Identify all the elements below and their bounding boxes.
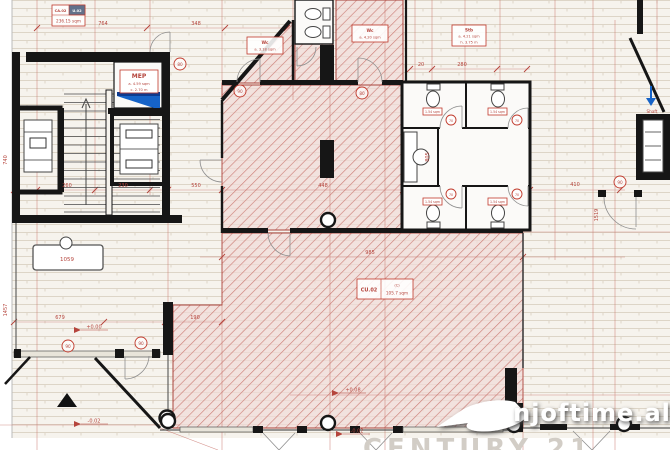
- svg-text:-0.02: -0.02: [351, 429, 364, 435]
- svg-text:1.54 sqm: 1.54 sqm: [425, 200, 440, 204]
- svg-text:a. 3.18 sqm: a. 3.18 sqm: [254, 48, 276, 52]
- svg-text:70: 70: [449, 119, 453, 123]
- mep-height: c. 2.70 m: [131, 88, 148, 92]
- wc-block: 1.54 sqm 1.54 sqm 1.54 sqm 1.54 sqm: [402, 82, 530, 232]
- main-unit-code: CU.02: [361, 288, 378, 294]
- svg-text:90: 90: [237, 89, 243, 94]
- brand-watermark: njoftime.al: [513, 399, 670, 427]
- svg-text:70: 70: [449, 193, 453, 197]
- column: [321, 416, 335, 430]
- svg-text:Stb: Stb: [465, 28, 473, 33]
- svg-text:70: 70: [515, 193, 519, 197]
- main-unit-tag: (C): [394, 284, 400, 288]
- column: [321, 213, 335, 227]
- svg-text:1.54 sqm: 1.54 sqm: [490, 110, 505, 114]
- wc-mid-label: Wc a. 4.20 sqm: [352, 25, 388, 42]
- main-unit-area: 105.7 sqm: [386, 291, 408, 296]
- svg-text:1.54 sqm: 1.54 sqm: [425, 110, 440, 114]
- unit-top-area: 236.15 sqm: [56, 19, 81, 24]
- svg-text:Wc: Wc: [261, 40, 269, 45]
- agency-watermark: CENTURY 21: [363, 434, 593, 450]
- wc-top-label: Wc a. 3.18 sqm: [247, 37, 283, 54]
- mep-name: MEP: [132, 73, 147, 80]
- svg-text:805: 805: [425, 152, 431, 162]
- floor-plan: MEP a. 4.59 sqm c. 2.70 m: [0, 0, 670, 450]
- svg-text:80: 80: [177, 62, 183, 67]
- unit-label-top: CA.02 U.02 236.15 sqm: [52, 5, 85, 26]
- desk-label: 1059: [60, 257, 74, 263]
- svg-text:70: 70: [515, 119, 519, 123]
- svg-text:90: 90: [65, 344, 71, 349]
- unit-top-code: CA.02: [55, 9, 67, 13]
- svg-text:20: 20: [418, 62, 424, 68]
- column: [161, 414, 175, 428]
- svg-text:1519: 1519: [594, 209, 600, 222]
- svg-text:764: 764: [98, 21, 108, 27]
- svg-text:a. 4.20 sqm: a. 4.20 sqm: [359, 36, 381, 40]
- svg-text:-0.02: -0.02: [88, 419, 101, 425]
- svg-text:550: 550: [191, 183, 201, 189]
- svg-text:90: 90: [617, 180, 623, 185]
- svg-text:280: 280: [457, 62, 467, 68]
- hatch-mid-corridor: [222, 85, 403, 230]
- svg-text:985: 985: [365, 250, 375, 256]
- stb-label: Stb a. 4.21 sqm h. 3.75 m: [452, 25, 486, 46]
- svg-text:1457: 1457: [3, 304, 9, 317]
- svg-text:a. 4.21 sqm: a. 4.21 sqm: [458, 35, 480, 39]
- shaft-label: Shaft: [647, 109, 658, 114]
- svg-text:679: 679: [55, 315, 65, 321]
- mep-area: a. 4.59 sqm: [128, 82, 150, 86]
- svg-text:230: 230: [118, 183, 128, 189]
- main-unit-label: CU.02 (C) 105.7 sqm: [357, 279, 413, 299]
- svg-text:+0.08: +0.08: [345, 388, 360, 394]
- unit-top-suite: U.02: [72, 9, 82, 13]
- mep-label: MEP a. 4.59 sqm c. 2.70 m: [120, 70, 158, 93]
- svg-text:410: 410: [570, 182, 580, 188]
- svg-text:260: 260: [62, 183, 72, 189]
- svg-text:80: 80: [359, 91, 365, 96]
- mep-room: MEP a. 4.59 sqm c. 2.70 m: [114, 62, 162, 110]
- svg-text:Wc: Wc: [366, 28, 374, 33]
- svg-text:h. 3.75 m: h. 3.75 m: [460, 41, 478, 45]
- svg-text:740: 740: [3, 155, 9, 165]
- svg-text:190: 190: [190, 315, 200, 321]
- hatch-main-unit: [173, 233, 523, 428]
- svg-text:+0.00: +0.00: [86, 325, 101, 331]
- svg-text:90: 90: [138, 341, 144, 346]
- svg-text:448: 448: [318, 183, 328, 189]
- floor-plan-screenshot: MEP a. 4.59 sqm c. 2.70 m: [0, 0, 670, 450]
- svg-text:1.54 sqm: 1.54 sqm: [490, 200, 505, 204]
- svg-text:348: 348: [191, 21, 201, 27]
- hatch-top-room: [336, 0, 403, 85]
